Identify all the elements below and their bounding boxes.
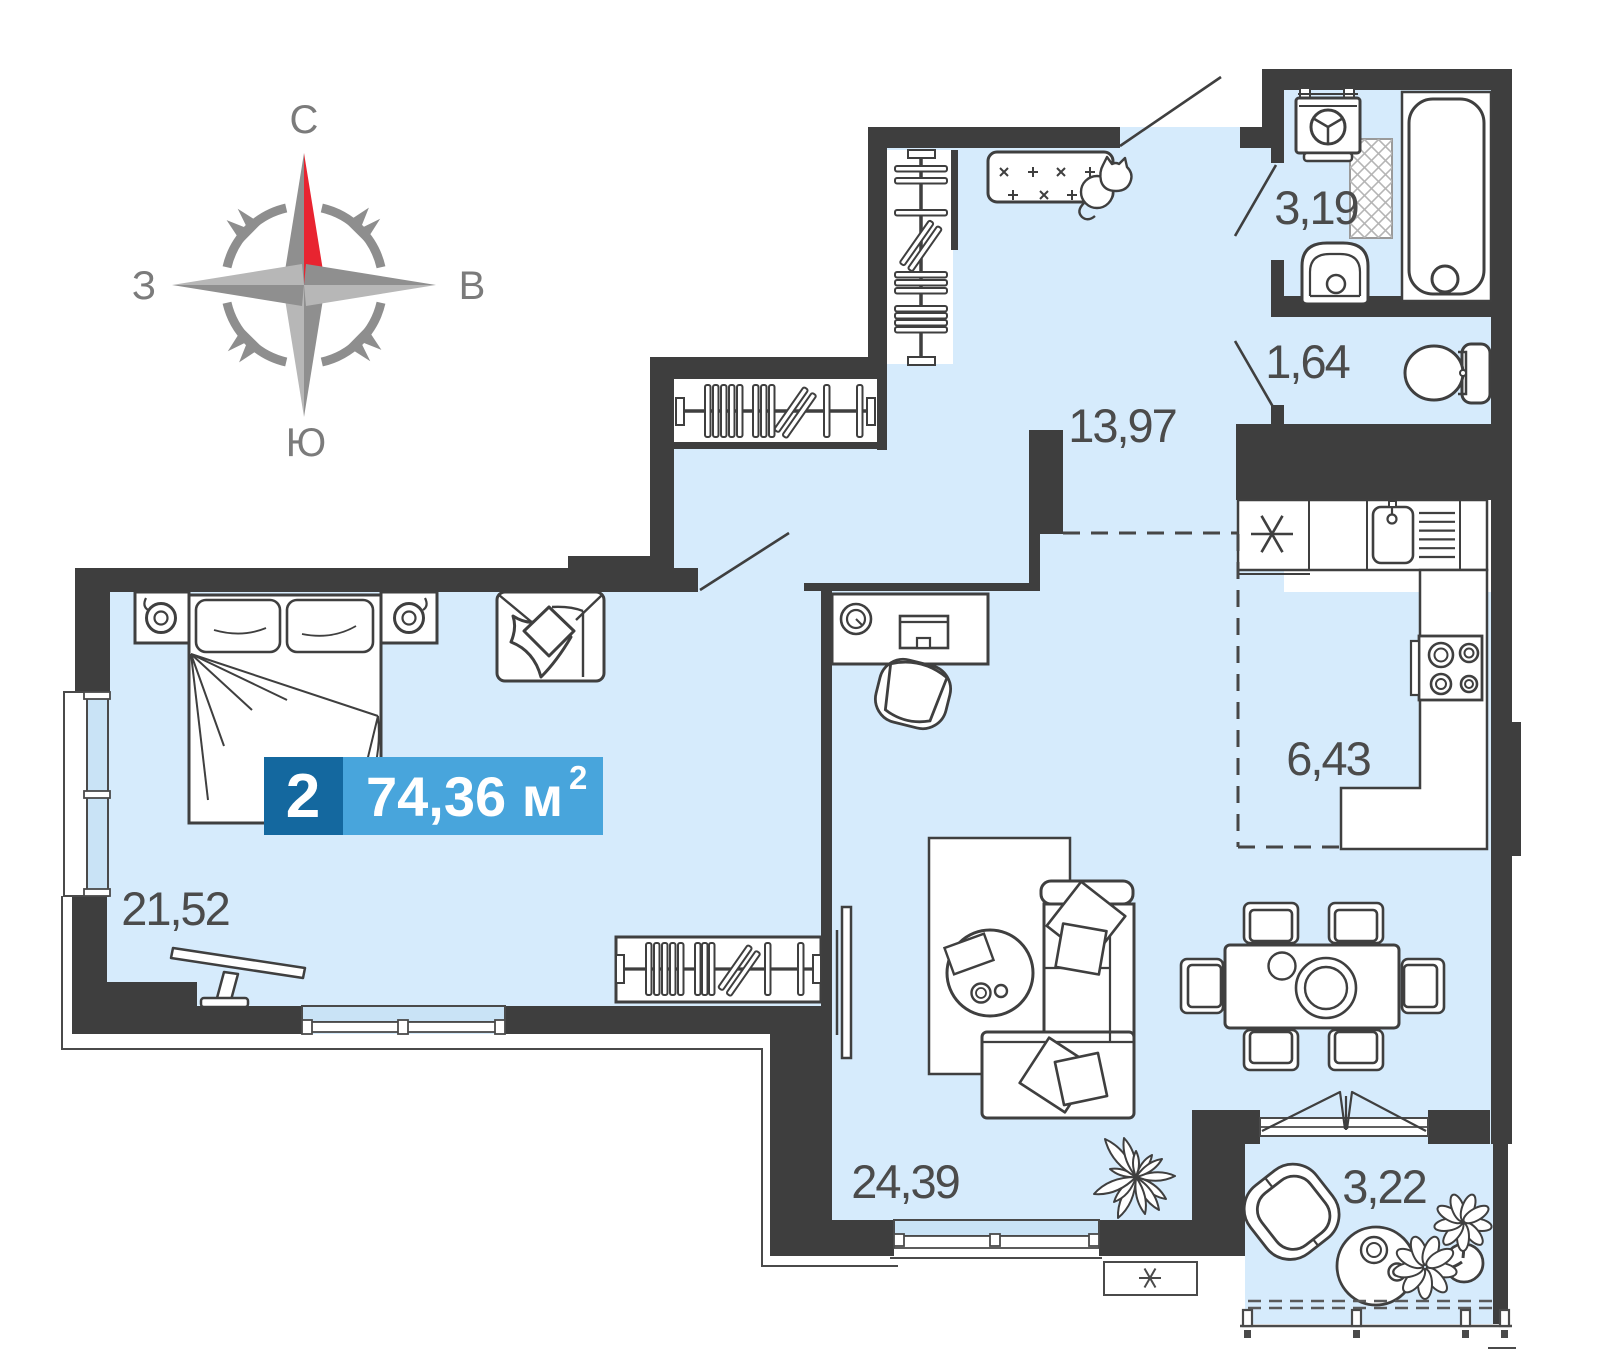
svg-text:2: 2 <box>569 759 587 796</box>
svg-text:З: З <box>132 264 156 308</box>
svg-text:3,22: 3,22 <box>1342 1160 1425 1213</box>
svg-text:21,52: 21,52 <box>121 882 229 935</box>
svg-text:6,43: 6,43 <box>1286 732 1370 785</box>
svg-text:13,97: 13,97 <box>1068 399 1176 452</box>
svg-text:2: 2 <box>286 762 320 831</box>
svg-text:Ю: Ю <box>286 421 326 465</box>
svg-text:74,36 м: 74,36 м <box>366 765 563 828</box>
svg-text:3,19: 3,19 <box>1274 181 1357 234</box>
svg-text:1,64: 1,64 <box>1265 335 1349 388</box>
svg-text:24,39: 24,39 <box>851 1155 959 1208</box>
svg-text:С: С <box>290 98 319 142</box>
svg-text:В: В <box>459 264 486 308</box>
